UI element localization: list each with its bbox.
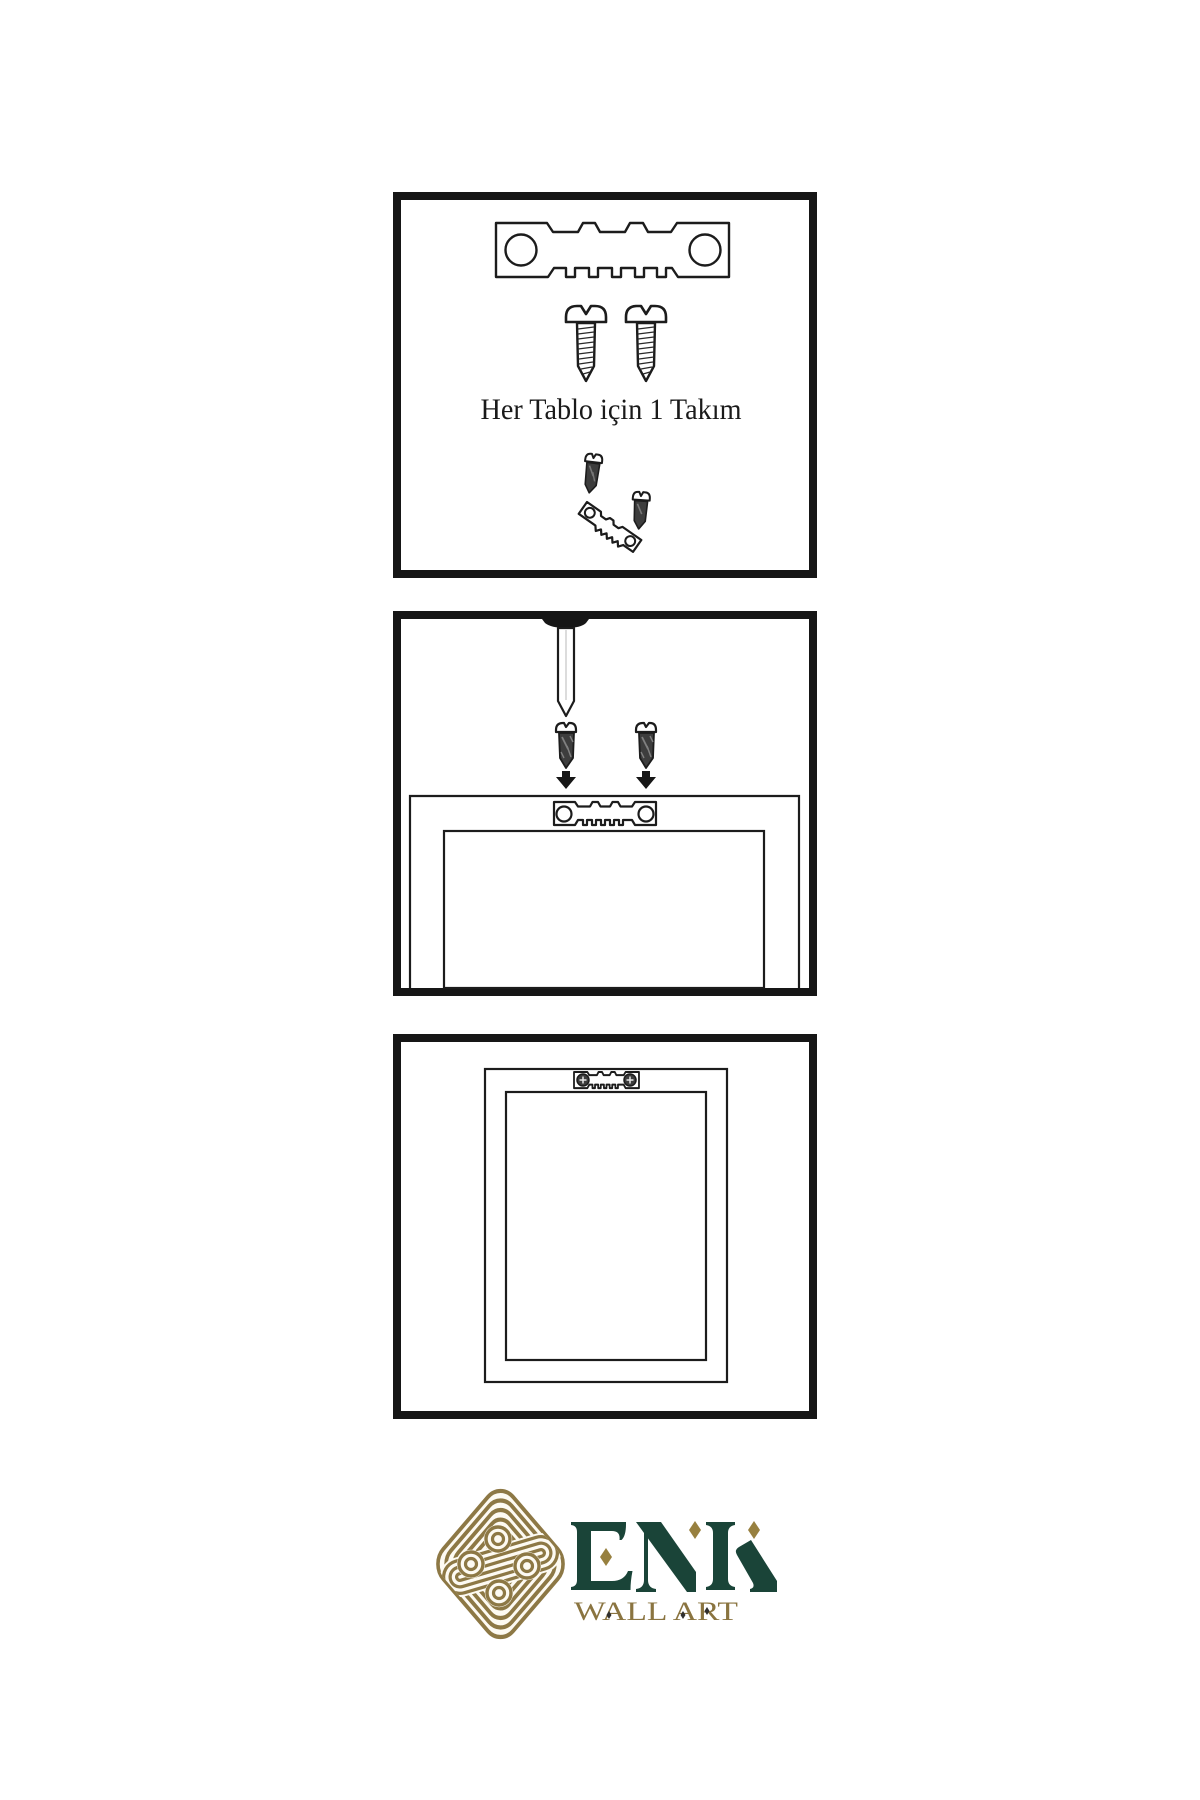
svg-text:Her Tablo için 1 Takım: Her Tablo için 1 Takım (481, 393, 742, 426)
svg-text:WALL ART: WALL ART (574, 1597, 738, 1626)
